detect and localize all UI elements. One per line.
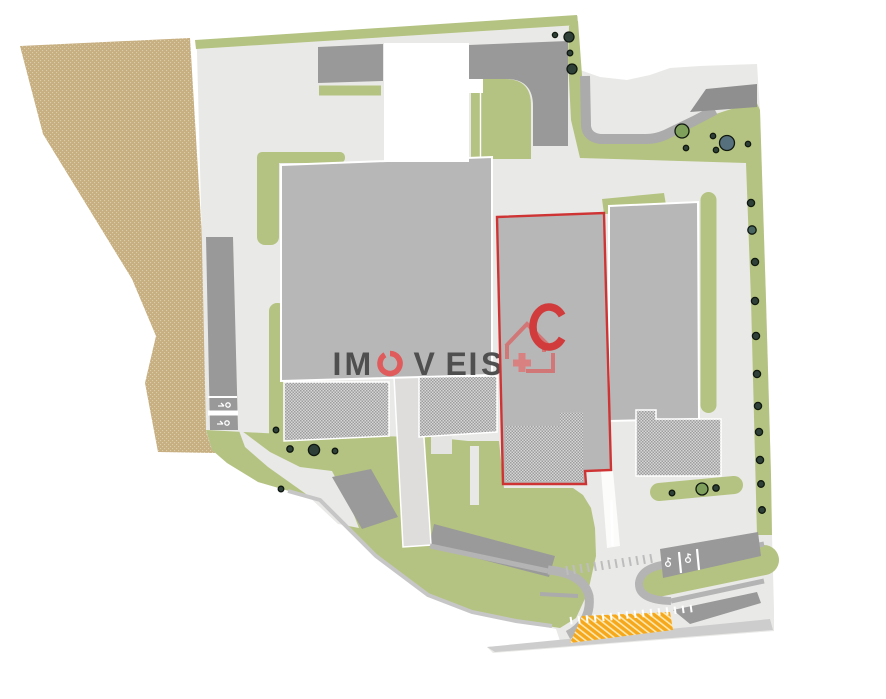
svg-text:IM: IM (333, 346, 372, 382)
svg-text:VEIS: VEIS (414, 346, 503, 382)
